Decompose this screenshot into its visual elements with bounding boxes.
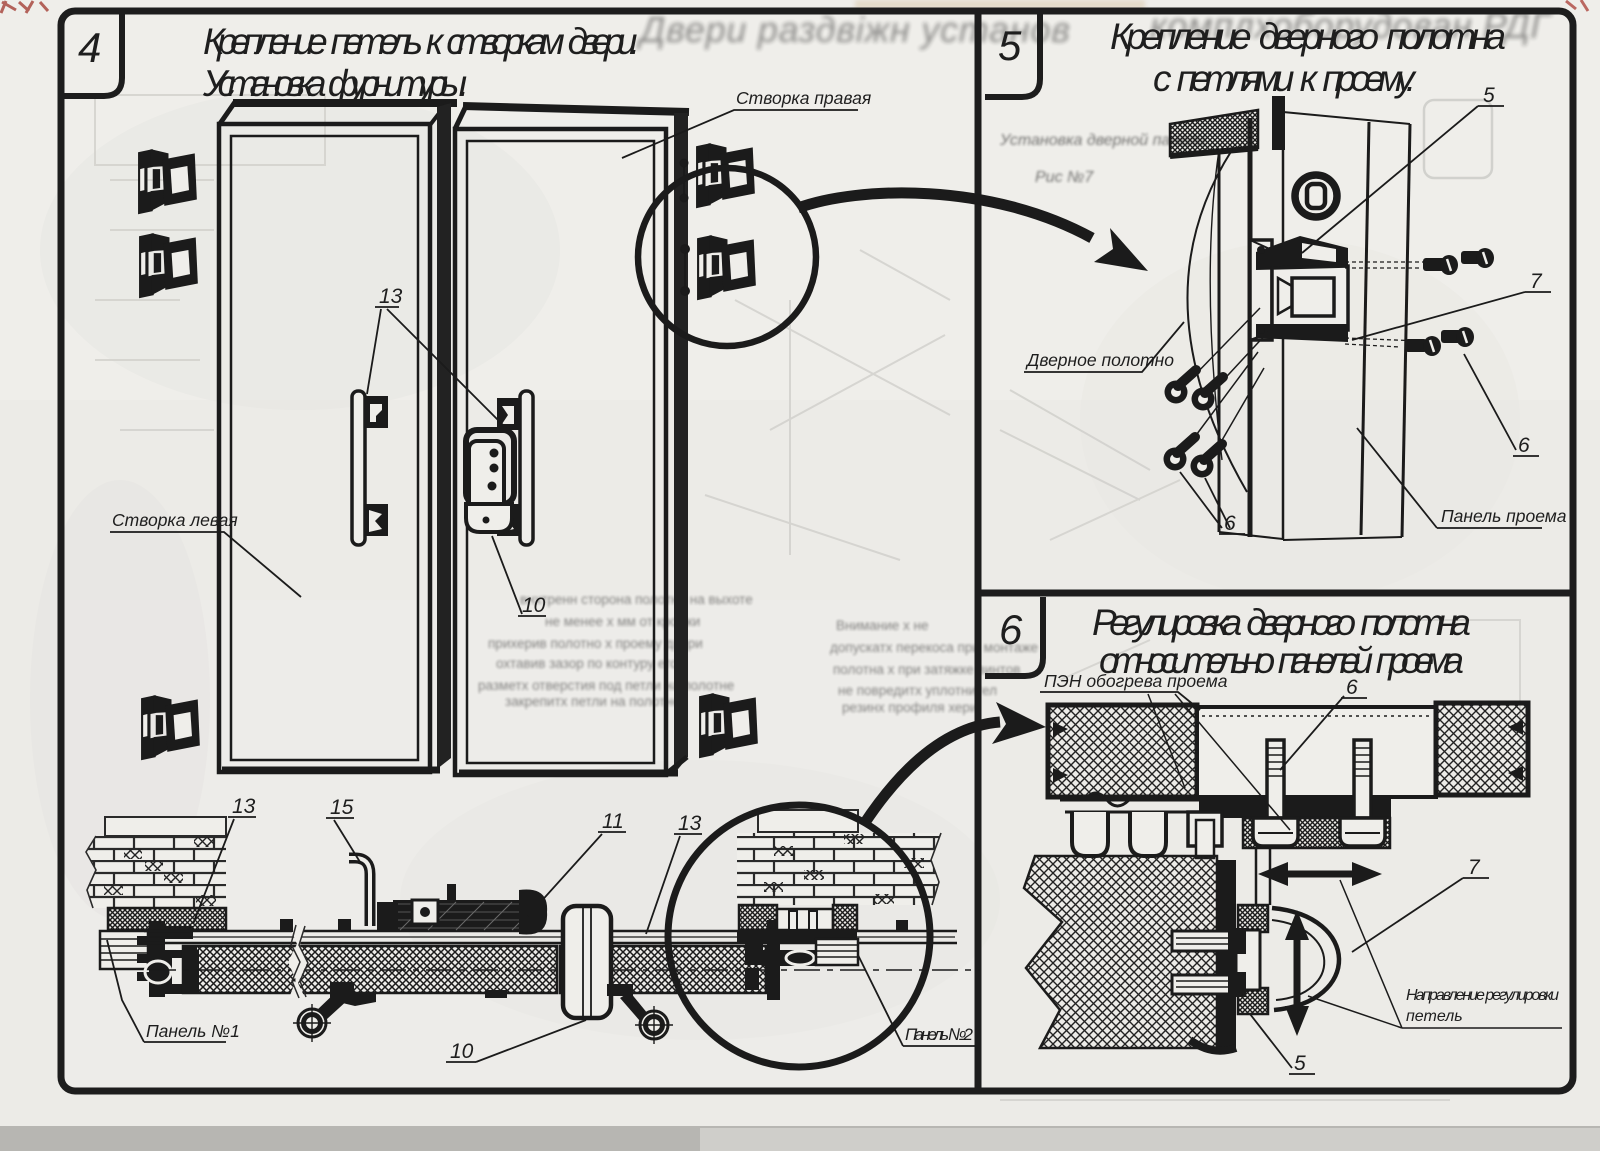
svg-text:11: 11 bbox=[602, 810, 624, 833]
svg-text:Направление регулировки: Направление регулировки bbox=[1406, 987, 1559, 1004]
svg-text:Крепление дверного полотна: Крепление дверного полотна bbox=[1110, 16, 1506, 57]
svg-text:6: 6 bbox=[1224, 512, 1236, 535]
svg-text:резинх профиля хери: резинх профиля хери bbox=[842, 700, 977, 715]
svg-text:5: 5 bbox=[998, 22, 1022, 69]
svg-text:Створка левая: Створка левая bbox=[112, 510, 238, 530]
svg-text:Регулировка дверного полотна: Регулировка дверного полотна bbox=[1092, 602, 1471, 643]
svg-text:разметх отверстия под петли на: разметх отверстия под петли на полотне bbox=[478, 678, 734, 693]
svg-text:ПЭН обогрева проема: ПЭН обогрева проема bbox=[1044, 671, 1228, 691]
svg-text:не повредитх уплотнител: не повредитх уплотнител bbox=[838, 683, 997, 698]
svg-text:13: 13 bbox=[678, 812, 702, 835]
svg-text:5: 5 bbox=[1483, 84, 1495, 107]
svg-text:15: 15 bbox=[330, 796, 354, 819]
svg-text:петель: петель bbox=[1406, 1008, 1463, 1025]
svg-text:Крепление петель к створкам дв: Крепление петель к створкам двери. bbox=[203, 21, 640, 62]
svg-text:охтавив зазор по контуру его: охтавив зазор по контуру его bbox=[496, 656, 678, 671]
svg-text:10: 10 bbox=[522, 594, 546, 617]
svg-text:6: 6 bbox=[999, 606, 1023, 653]
svg-text:Установка фурнитуры.: Установка фурнитуры. bbox=[202, 63, 469, 104]
svg-text:внхтренн сторона полотна на вы: внхтренн сторона полотна на выхоте bbox=[520, 592, 753, 607]
svg-text:6: 6 bbox=[1518, 434, 1530, 457]
svg-text:13: 13 bbox=[232, 795, 256, 818]
svg-text:7: 7 bbox=[1530, 270, 1543, 293]
svg-text:Рис №7: Рис №7 bbox=[1035, 169, 1094, 186]
svg-text:5: 5 bbox=[1294, 1052, 1306, 1075]
svg-text:Створка правая: Створка правая bbox=[736, 88, 871, 108]
svg-text:Панель №2: Панель №2 bbox=[905, 1025, 974, 1044]
svg-text:прихерив полотно х проему двер: прихерив полотно х проему двери bbox=[488, 636, 703, 651]
svg-text:Панель №1: Панель №1 bbox=[146, 1021, 240, 1041]
svg-text:7: 7 bbox=[1468, 856, 1481, 879]
svg-text:13: 13 bbox=[379, 285, 403, 308]
svg-text:10: 10 bbox=[450, 1040, 474, 1063]
svg-text:4: 4 bbox=[78, 24, 101, 71]
svg-text:Панель проема: Панель проема bbox=[1441, 506, 1567, 526]
svg-text:Внимание х не: Внимание х не bbox=[836, 618, 929, 633]
svg-text:6: 6 bbox=[1346, 676, 1358, 699]
svg-text:с петлями к проему.: с петлями к проему. bbox=[1153, 58, 1417, 99]
